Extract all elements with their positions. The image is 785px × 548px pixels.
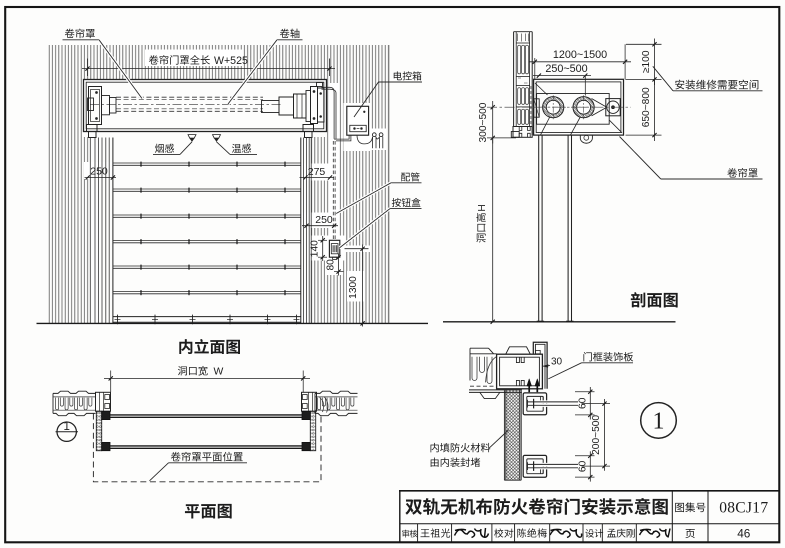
svg-text:1: 1: [653, 409, 665, 435]
svg-text:W+525: W+525: [214, 55, 248, 67]
svg-text:275: 275: [308, 166, 326, 178]
svg-text:46: 46: [737, 527, 751, 541]
svg-text:≥100: ≥100: [641, 50, 652, 73]
svg-text:1200~1500: 1200~1500: [553, 49, 607, 61]
svg-text:80: 80: [325, 259, 336, 271]
svg-text:250~500: 250~500: [545, 63, 587, 75]
svg-text:60: 60: [578, 460, 589, 472]
svg-text:H: H: [477, 204, 488, 211]
svg-text:08CJ17: 08CJ17: [719, 500, 768, 517]
svg-text:200~500: 200~500: [591, 415, 602, 455]
svg-text:60: 60: [578, 397, 589, 409]
svg-text:1: 1: [63, 421, 69, 433]
svg-text:250: 250: [90, 166, 108, 178]
svg-text:300~500: 300~500: [478, 102, 489, 142]
svg-text:250: 250: [315, 214, 333, 226]
svg-text:650~800: 650~800: [641, 87, 652, 127]
svg-text:140: 140: [309, 240, 320, 257]
svg-text:W: W: [214, 367, 224, 378]
svg-text:30: 30: [551, 357, 563, 368]
svg-text:1300: 1300: [348, 276, 359, 299]
